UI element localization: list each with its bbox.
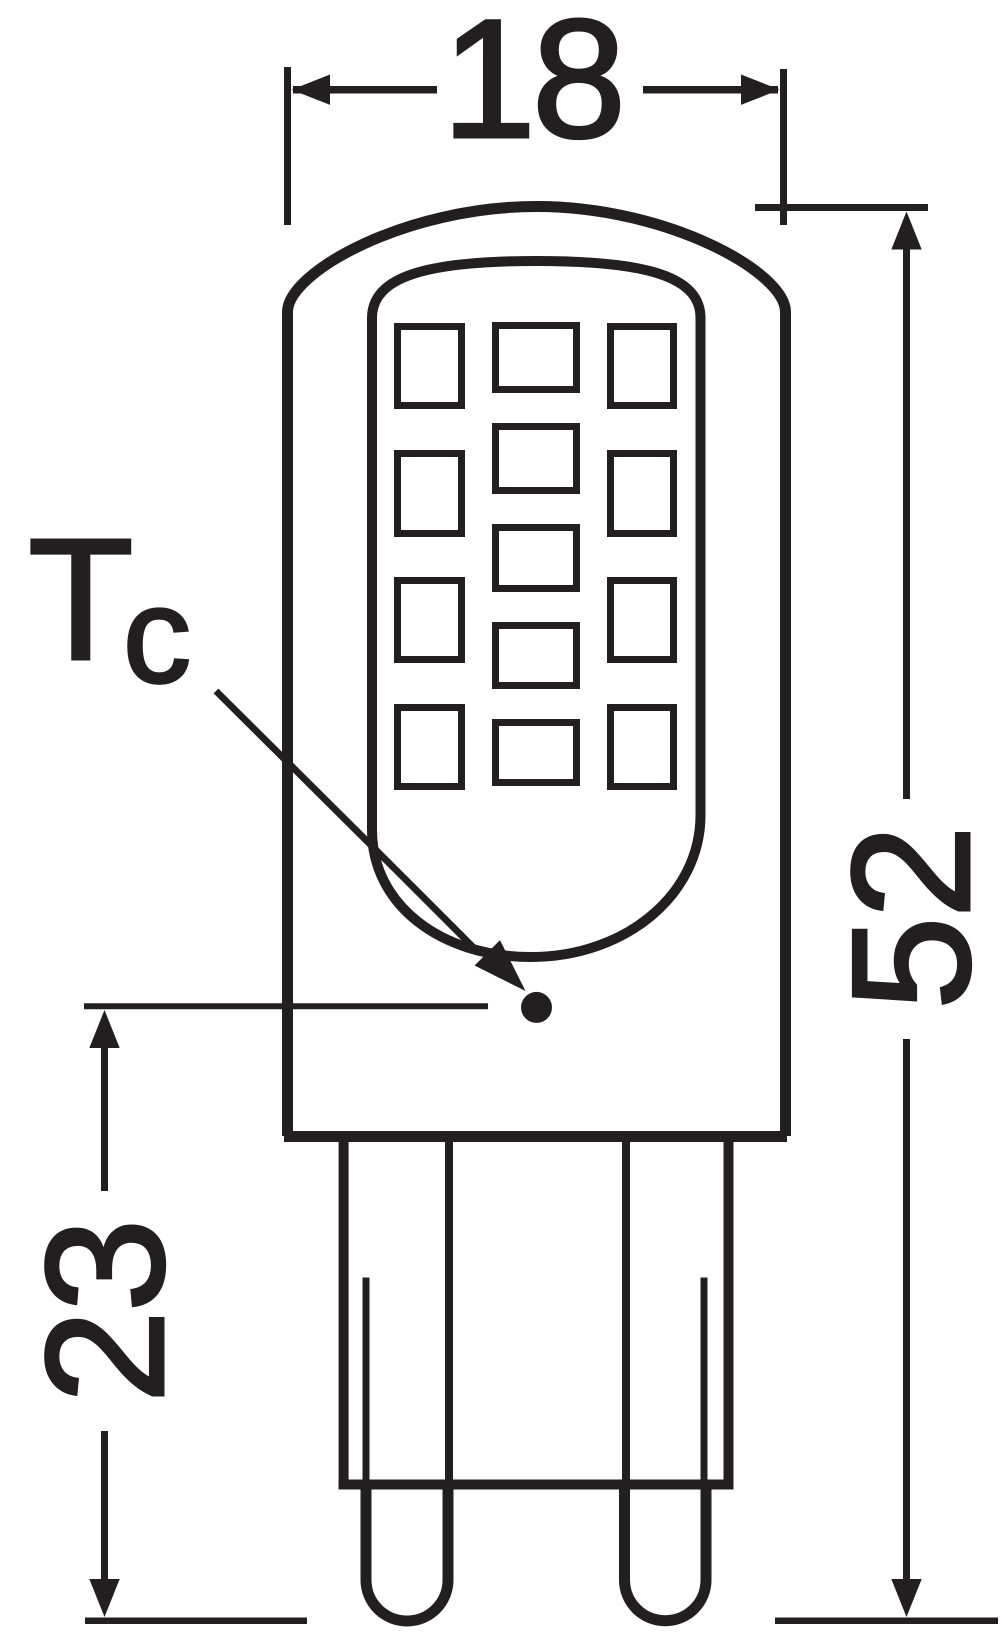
svg-text:T: T — [28, 502, 134, 696]
svg-text:18: 18 — [442, 0, 622, 173]
svg-text:23: 23 — [11, 1221, 199, 1404]
svg-text:c: c — [123, 559, 191, 711]
svg-text:52: 52 — [817, 827, 1000, 1010]
